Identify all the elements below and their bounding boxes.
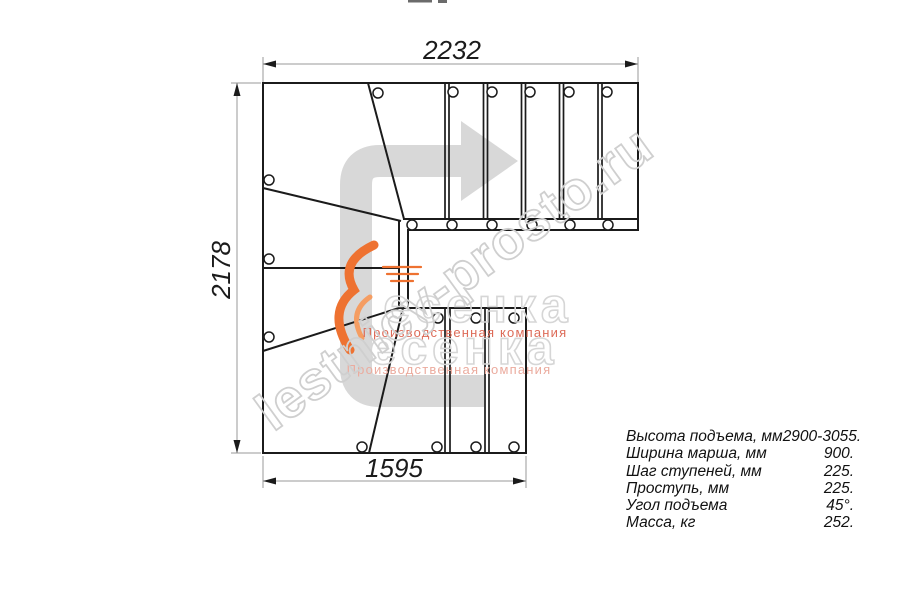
spec-value: 45°. — [826, 497, 854, 514]
spec-label: Масса, кг — [626, 514, 695, 531]
dimension-left-value: 2178 — [206, 241, 236, 300]
spec-value: 900. — [824, 445, 854, 462]
dimension-bottom-value: 1595 — [365, 453, 423, 483]
spec-row: Ширина марша, мм 900. — [626, 445, 854, 462]
spec-value: 225. — [824, 463, 854, 480]
dimension-top-value: 2232 — [422, 35, 481, 65]
staircase-drawing-canvas: 2232 2178 1595 есенка Производственная к… — [0, 0, 900, 600]
spec-row: Высота подъема, мм 2900-3055. — [626, 428, 854, 445]
spec-table: Высота подъема, мм 2900-3055. Ширина мар… — [626, 428, 854, 532]
spec-row: Угол подъема 45°. — [626, 497, 854, 514]
dimension-bottom: 1595 — [263, 453, 526, 488]
spec-value: 2900-3055. — [783, 428, 861, 445]
direction-arrow-head — [461, 121, 518, 201]
spec-row: Шаг ступеней, мм 225. — [626, 463, 854, 480]
spec-label: Угол подъема — [626, 497, 727, 514]
dimension-top: 2232 — [263, 35, 638, 82]
spec-row: Проступь, мм 225. — [626, 480, 854, 497]
winder-line-2 — [263, 188, 401, 221]
spec-value: 225. — [824, 480, 854, 497]
spec-label: Ширина марша, мм — [626, 445, 767, 462]
spec-value: 252. — [824, 514, 854, 531]
cropped-title-fragment — [408, 0, 447, 3]
spec-label: Шаг ступеней, мм — [626, 463, 762, 480]
spec-label: Проступь, мм — [626, 480, 729, 497]
spec-label: Высота подъема, мм — [626, 428, 783, 445]
spec-row: Масса, кг 252. — [626, 514, 854, 531]
